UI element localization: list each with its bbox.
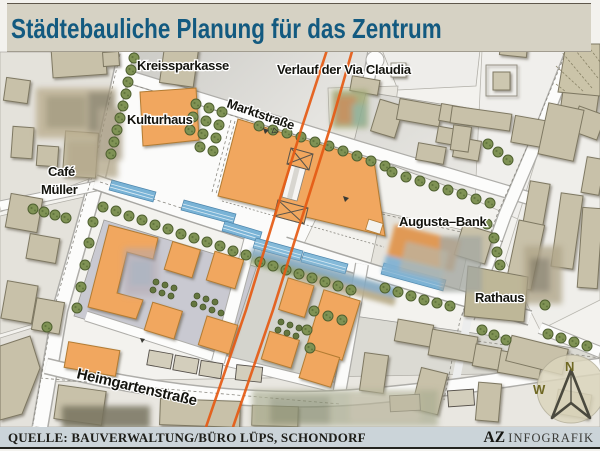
svg-text:N: N bbox=[565, 359, 574, 374]
svg-text:Augusta–Bank: Augusta–Bank bbox=[399, 214, 487, 229]
svg-text:Müller: Müller bbox=[41, 182, 78, 197]
svg-text:W: W bbox=[533, 382, 546, 397]
svg-text:Verlauf der Via Claudia: Verlauf der Via Claudia bbox=[277, 62, 412, 77]
svg-text:Kulturhaus: Kulturhaus bbox=[127, 112, 193, 127]
svg-text:Rathaus: Rathaus bbox=[475, 290, 524, 305]
svg-text:Kreissparkasse: Kreissparkasse bbox=[137, 58, 229, 73]
svg-text:Café: Café bbox=[48, 164, 75, 179]
